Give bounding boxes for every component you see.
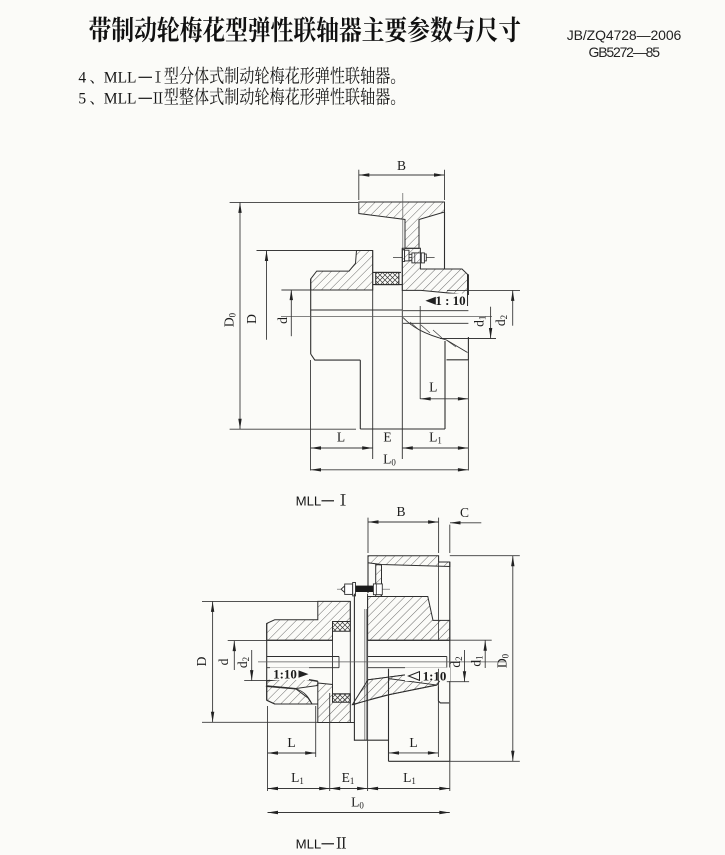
svg-text:MLL: MLL xyxy=(104,91,137,108)
svg-text:MLL: MLL xyxy=(296,837,322,852)
svg-text:d1: d1 xyxy=(472,316,488,327)
svg-text:d: d xyxy=(216,658,231,665)
svg-text:D: D xyxy=(244,314,259,324)
svg-text:MLL: MLL xyxy=(296,494,322,509)
svg-text:B: B xyxy=(396,504,405,519)
svg-text:L0: L0 xyxy=(351,795,364,811)
svg-text:D: D xyxy=(194,656,209,666)
svg-text:1:10: 1:10 xyxy=(273,667,297,682)
svg-text:E1: E1 xyxy=(342,770,355,786)
svg-text:MLL: MLL xyxy=(104,70,137,87)
svg-text:d1: d1 xyxy=(469,655,485,666)
svg-text:L0: L0 xyxy=(383,452,396,468)
svg-text:L1: L1 xyxy=(403,770,416,786)
svg-text:1:10: 1:10 xyxy=(423,669,447,684)
svg-text:L: L xyxy=(429,380,437,395)
svg-text:5: 5 xyxy=(78,91,86,108)
svg-text:E: E xyxy=(383,430,391,445)
svg-text:L1: L1 xyxy=(429,430,442,446)
svg-text:D0: D0 xyxy=(222,312,238,327)
svg-text:L1: L1 xyxy=(291,770,304,786)
svg-text:L: L xyxy=(287,735,295,750)
svg-text:L: L xyxy=(409,735,417,750)
svg-text:GB5272—85: GB5272—85 xyxy=(589,44,661,60)
svg-text:d2: d2 xyxy=(235,657,251,668)
svg-text:d2: d2 xyxy=(493,315,509,326)
svg-text:d: d xyxy=(275,317,290,324)
svg-text:B: B xyxy=(397,158,406,173)
svg-text:L: L xyxy=(337,430,345,445)
svg-text:C: C xyxy=(460,505,469,520)
svg-text:4: 4 xyxy=(78,70,86,87)
svg-text:1 : 10: 1 : 10 xyxy=(435,293,465,308)
svg-text:D0: D0 xyxy=(495,653,511,668)
svg-text:JB/ZQ4728—2006: JB/ZQ4728—2006 xyxy=(567,27,682,43)
svg-text:d2: d2 xyxy=(448,656,464,667)
